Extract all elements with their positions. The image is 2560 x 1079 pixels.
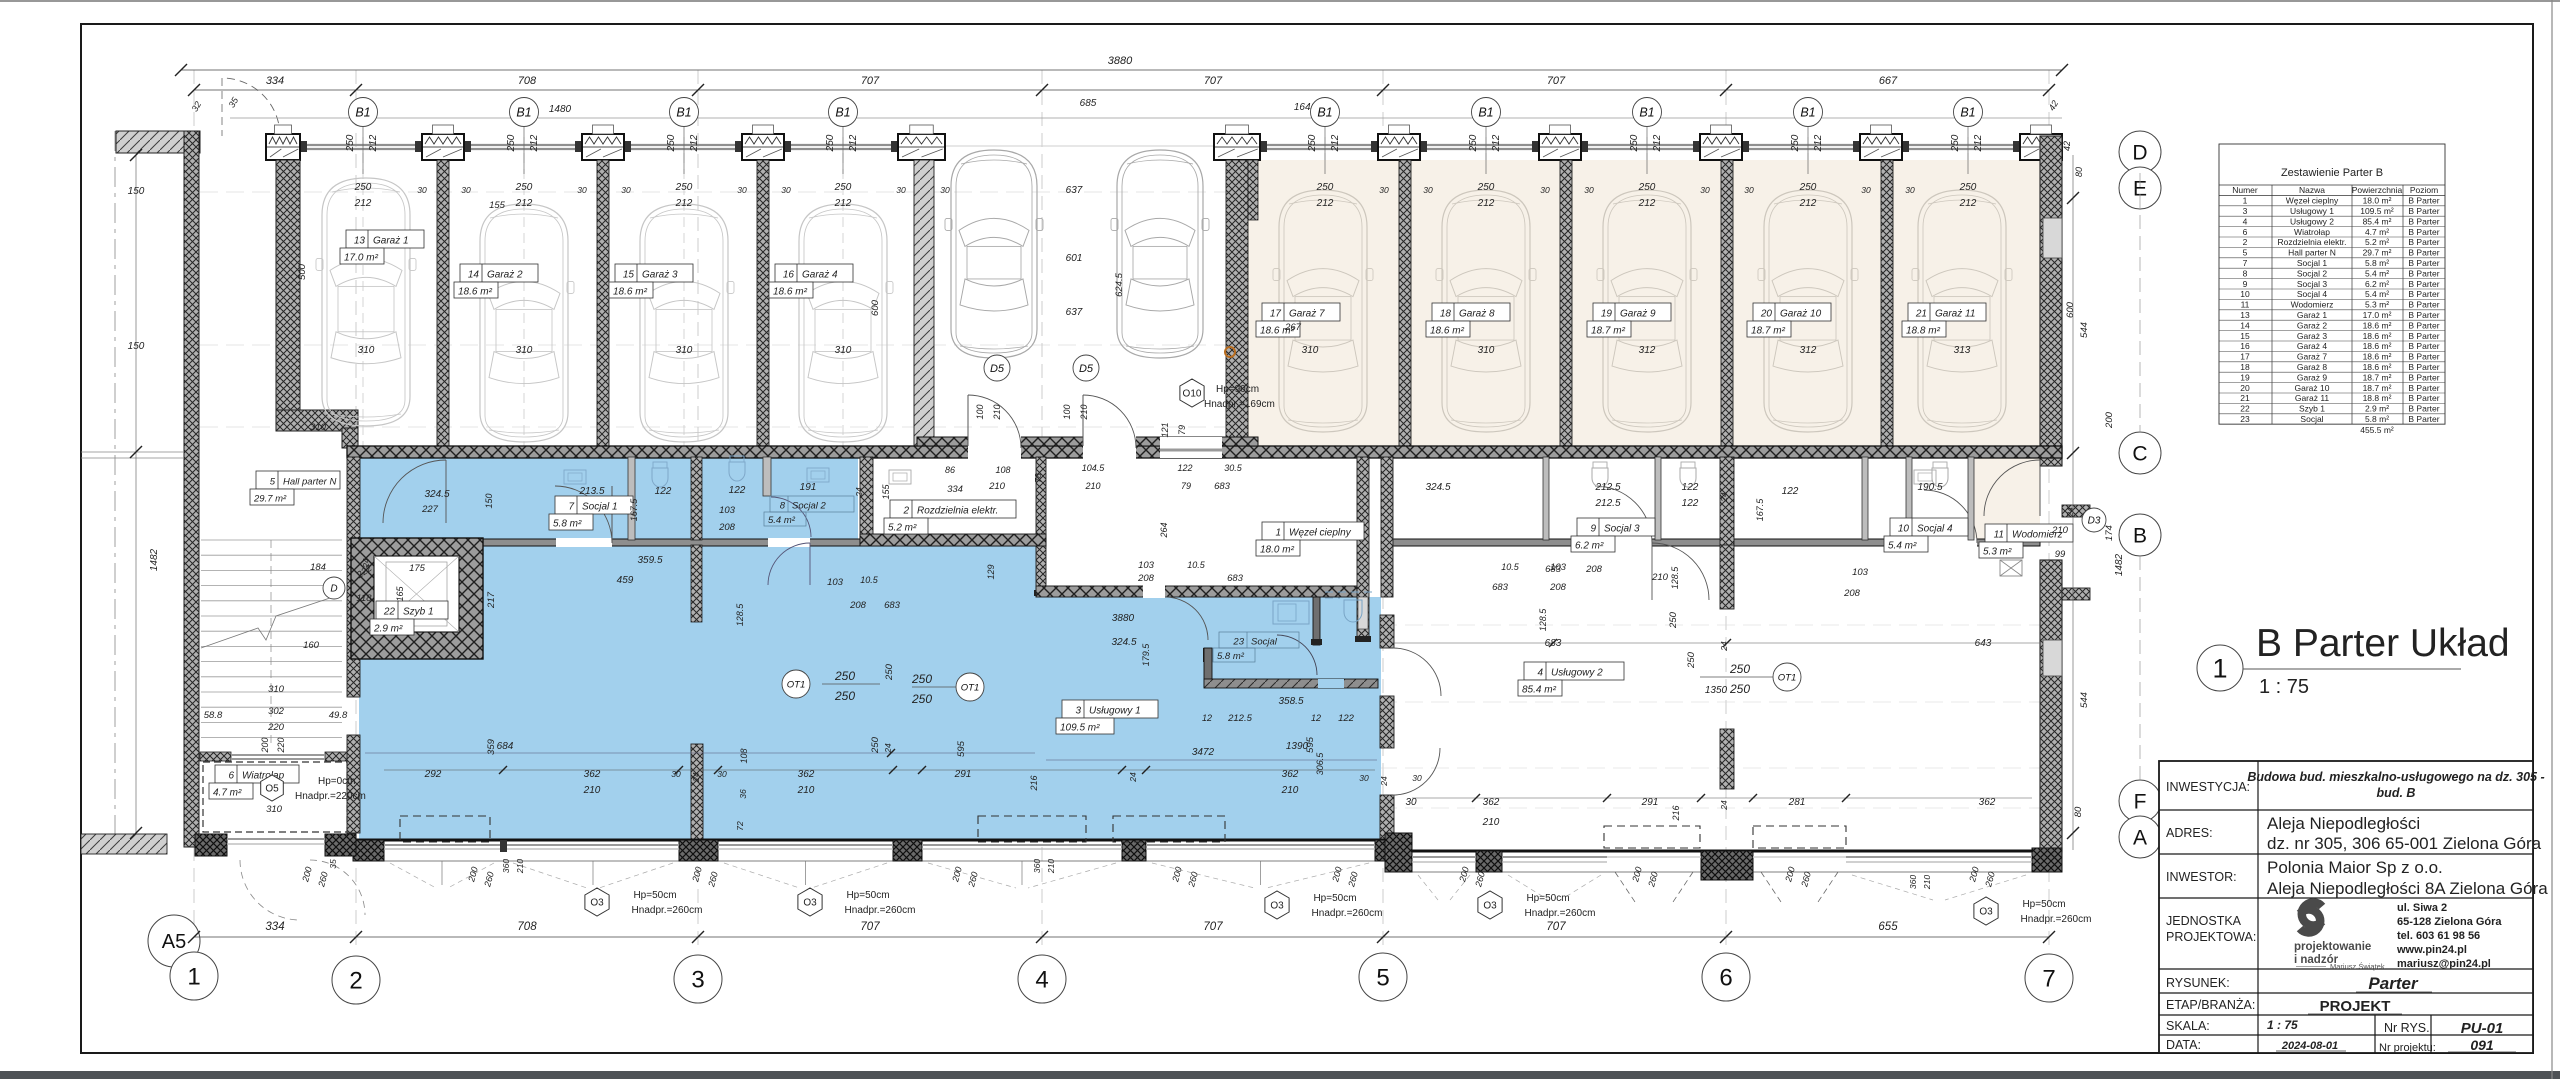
svg-text:2: 2 — [2243, 237, 2248, 247]
svg-text:667: 667 — [1879, 75, 1898, 87]
svg-text:Usługowy 2: Usługowy 2 — [2290, 216, 2334, 226]
svg-text:Socjal 2: Socjal 2 — [2297, 268, 2328, 278]
svg-text:6: 6 — [2243, 227, 2248, 237]
svg-text:F: F — [2134, 790, 2147, 813]
svg-text:Garaż 10: Garaż 10 — [1780, 309, 1822, 320]
svg-text:212: 212 — [1973, 134, 1984, 152]
svg-text:Nr projektu:: Nr projektu: — [2379, 1042, 2436, 1054]
svg-text:18.6 m²: 18.6 m² — [613, 287, 648, 298]
svg-text:B Parter: B Parter — [2408, 300, 2439, 310]
svg-text:5.8 m²: 5.8 m² — [2365, 258, 2389, 268]
svg-text:21: 21 — [2240, 393, 2250, 403]
svg-text:5.2 m²: 5.2 m² — [2365, 237, 2389, 247]
svg-text:210: 210 — [1046, 859, 1056, 874]
svg-text:B Parter: B Parter — [2408, 383, 2439, 393]
svg-text:212: 212 — [834, 198, 852, 209]
svg-text:684: 684 — [497, 741, 514, 752]
svg-text:15: 15 — [2240, 331, 2250, 341]
svg-text:1350: 1350 — [1705, 685, 1728, 696]
svg-text:3472: 3472 — [1192, 747, 1215, 758]
svg-text:683: 683 — [1545, 564, 1562, 575]
svg-text:5: 5 — [270, 477, 276, 488]
svg-text:108: 108 — [739, 748, 749, 763]
svg-text:30: 30 — [1744, 185, 1754, 195]
svg-text:212: 212 — [675, 198, 693, 209]
svg-text:30: 30 — [781, 185, 791, 195]
svg-text:360: 360 — [1032, 859, 1042, 873]
svg-text:D: D — [330, 584, 337, 595]
svg-text:Garaż 9: Garaż 9 — [2297, 372, 2328, 382]
svg-text:79: 79 — [1177, 425, 1187, 435]
svg-text:Garaż 4: Garaż 4 — [802, 270, 838, 281]
svg-text:18.6 m²: 18.6 m² — [1430, 326, 1465, 337]
svg-text:210: 210 — [1281, 785, 1299, 796]
svg-text:358.5: 358.5 — [1278, 696, 1303, 707]
svg-text:B Parter: B Parter — [2408, 372, 2439, 382]
svg-text:ul. Siwa 2: ul. Siwa 2 — [2397, 902, 2447, 914]
svg-text:18.7 m²: 18.7 m² — [1751, 326, 1786, 337]
svg-text:Socjal 1: Socjal 1 — [2297, 258, 2328, 268]
svg-text:Garaż 1: Garaż 1 — [373, 236, 409, 247]
svg-text:B Parter: B Parter — [2408, 362, 2439, 372]
svg-text:18.6 m²: 18.6 m² — [2363, 341, 2392, 351]
svg-text:PROJEKT: PROJEKT — [2320, 998, 2391, 1015]
svg-text:220: 220 — [267, 722, 285, 733]
svg-text:13: 13 — [354, 236, 366, 247]
svg-text:20: 20 — [1760, 309, 1773, 320]
svg-text:7: 7 — [568, 502, 574, 513]
svg-text:18.7 m²: 18.7 m² — [1591, 326, 1626, 337]
svg-text:Hnadpr.=260cm: Hnadpr.=260cm — [1312, 908, 1383, 919]
svg-text:544: 544 — [2079, 692, 2090, 708]
svg-text:17.0 m²: 17.0 m² — [344, 253, 379, 264]
svg-text:16: 16 — [783, 270, 795, 281]
svg-text:30: 30 — [717, 769, 727, 779]
svg-text:216: 216 — [1671, 805, 1681, 821]
svg-text:212: 212 — [368, 134, 379, 152]
svg-text:250: 250 — [354, 182, 372, 193]
svg-text:122: 122 — [1177, 463, 1192, 473]
svg-text:455.5 m²: 455.5 m² — [2360, 425, 2394, 435]
svg-text:7: 7 — [2042, 965, 2055, 992]
svg-text:B1: B1 — [1639, 105, 1654, 119]
svg-text:210: 210 — [797, 785, 815, 796]
svg-text:359: 359 — [486, 738, 497, 755]
svg-text:Hnadpr.=260cm: Hnadpr.=260cm — [845, 905, 916, 916]
svg-text:250: 250 — [1468, 134, 1479, 152]
svg-text:Garaż 11: Garaż 11 — [2295, 393, 2330, 403]
svg-text:Powierzchnia: Powierzchnia — [2352, 185, 2403, 195]
svg-text:O5: O5 — [265, 784, 279, 795]
svg-text:B: B — [2133, 524, 2147, 547]
svg-text:Hall parter N: Hall parter N — [2288, 248, 2336, 258]
svg-text:212: 212 — [515, 198, 533, 209]
svg-text:30: 30 — [1405, 797, 1417, 808]
svg-text:18.8 m²: 18.8 m² — [2363, 393, 2392, 403]
svg-text:250: 250 — [1477, 182, 1495, 193]
svg-text:B1: B1 — [1317, 105, 1332, 119]
svg-text:5.8 m²: 5.8 m² — [1217, 651, 1245, 662]
svg-text:18.7 m²: 18.7 m² — [2363, 383, 2392, 393]
svg-text:ETAP/BRANŻA:: ETAP/BRANŻA: — [2166, 998, 2255, 1012]
svg-text:10: 10 — [2240, 289, 2250, 299]
svg-text:310: 310 — [310, 422, 327, 433]
svg-text:302: 302 — [268, 706, 285, 717]
svg-text:Zestawienie Parter B: Zestawienie Parter B — [2281, 167, 2383, 179]
svg-text:15: 15 — [623, 270, 635, 281]
svg-text:C: C — [2132, 442, 2147, 465]
svg-text:30: 30 — [417, 185, 427, 195]
svg-text:362: 362 — [1282, 769, 1299, 780]
svg-text:250: 250 — [834, 669, 855, 683]
svg-text:Socjal: Socjal — [2300, 414, 2323, 424]
svg-text:212: 212 — [1316, 198, 1334, 209]
svg-text:220: 220 — [276, 737, 286, 753]
svg-text:174: 174 — [2104, 525, 2115, 541]
svg-text:100: 100 — [975, 404, 985, 419]
svg-text:OT1: OT1 — [1778, 672, 1796, 683]
svg-text:3: 3 — [691, 966, 704, 993]
svg-text:INWESTOR:: INWESTOR: — [2166, 870, 2237, 884]
svg-text:10.5: 10.5 — [1187, 560, 1206, 570]
svg-text:B1: B1 — [676, 105, 691, 119]
svg-text:4: 4 — [1035, 966, 1048, 993]
svg-text:14: 14 — [2240, 320, 2250, 330]
svg-text:Socjal 3: Socjal 3 — [2297, 279, 2328, 289]
svg-text:18: 18 — [1440, 309, 1452, 320]
svg-text:ADRES:: ADRES: — [2166, 826, 2213, 840]
svg-text:O3: O3 — [803, 898, 817, 909]
svg-text:212.5: 212.5 — [1594, 498, 1620, 509]
svg-text:250: 250 — [675, 182, 693, 193]
svg-text:708: 708 — [518, 75, 537, 87]
svg-text:184: 184 — [310, 562, 326, 573]
svg-text:6.2 m²: 6.2 m² — [1575, 541, 1604, 552]
svg-text:30: 30 — [1861, 185, 1871, 195]
svg-text:Szyb 1: Szyb 1 — [2299, 404, 2325, 414]
svg-text:1: 1 — [1275, 528, 1281, 539]
svg-text:2.9 m²: 2.9 m² — [373, 624, 403, 635]
svg-text:624.5: 624.5 — [1114, 272, 1125, 296]
svg-text:212: 212 — [1491, 134, 1502, 152]
svg-text:B Parter Układ: B Parter Układ — [2256, 622, 2510, 665]
svg-text:600: 600 — [2065, 301, 2076, 318]
svg-text:10.5: 10.5 — [860, 575, 879, 585]
svg-text:30: 30 — [577, 185, 587, 195]
svg-text:208: 208 — [1585, 564, 1603, 575]
svg-text:Parter: Parter — [2368, 974, 2419, 993]
svg-text:5.4 m²: 5.4 m² — [2365, 289, 2389, 299]
svg-text:Hp=50cm: Hp=50cm — [2022, 899, 2065, 910]
svg-text:122: 122 — [1682, 482, 1699, 493]
svg-text:22: 22 — [2240, 404, 2250, 414]
svg-text:334: 334 — [266, 75, 284, 87]
svg-text:103: 103 — [719, 505, 736, 516]
svg-text:Szyb 1: Szyb 1 — [403, 607, 434, 618]
svg-text:B Parter: B Parter — [2408, 206, 2439, 216]
svg-text:5.4 m²: 5.4 m² — [1888, 541, 1917, 552]
svg-text:Aleja Niepodległości: Aleja Niepodległości — [2267, 814, 2420, 833]
svg-text:13: 13 — [2240, 310, 2250, 320]
svg-text:100: 100 — [1062, 404, 1072, 419]
svg-text:208: 208 — [1843, 588, 1861, 599]
svg-text:109.5 m²: 109.5 m² — [1060, 723, 1100, 734]
svg-text:A: A — [2133, 826, 2147, 849]
svg-text:Mariusz Świątek: Mariusz Świątek — [2330, 962, 2385, 971]
svg-text:B Parter: B Parter — [2408, 258, 2439, 268]
svg-text:10.5: 10.5 — [1501, 562, 1520, 572]
svg-text:250: 250 — [1668, 611, 1679, 629]
svg-text:24: 24 — [361, 558, 371, 569]
svg-text:5.8 m²: 5.8 m² — [553, 519, 582, 530]
svg-text:250: 250 — [834, 689, 855, 703]
svg-text:707: 707 — [860, 921, 880, 933]
svg-text:9: 9 — [2243, 279, 2248, 289]
svg-text:208: 208 — [1549, 582, 1567, 593]
svg-text:20: 20 — [2240, 383, 2250, 393]
svg-text:Usługowy 1: Usługowy 1 — [1089, 706, 1141, 717]
svg-text:212: 212 — [354, 198, 372, 209]
svg-text:B Parter: B Parter — [2408, 352, 2439, 362]
svg-text:Rozdzielnia elektr.: Rozdzielnia elektr. — [2278, 237, 2347, 247]
svg-text:Węzeł cieplny: Węzeł cieplny — [2286, 196, 2339, 206]
svg-text:150: 150 — [484, 493, 494, 508]
svg-text:Wiatrołap: Wiatrołap — [2294, 227, 2330, 237]
svg-text:312: 312 — [1639, 345, 1656, 356]
svg-text:8: 8 — [780, 501, 786, 512]
svg-text:2024-08-01: 2024-08-01 — [2281, 1040, 2338, 1052]
svg-text:637: 637 — [1066, 307, 1083, 318]
svg-text:122: 122 — [1682, 498, 1699, 509]
svg-text:Socjal 3: Socjal 3 — [1604, 524, 1640, 535]
svg-text:310: 310 — [1302, 345, 1319, 356]
svg-text:250: 250 — [1316, 182, 1334, 193]
svg-text:212.5: 212.5 — [1594, 482, 1620, 493]
svg-text:683: 683 — [1227, 573, 1244, 584]
svg-text:30: 30 — [896, 185, 906, 195]
svg-text:1 : 75: 1 : 75 — [2259, 676, 2309, 698]
svg-text:Garaż 7: Garaż 7 — [2297, 352, 2328, 362]
svg-text:18.6 m²: 18.6 m² — [773, 287, 808, 298]
svg-text:Hp=90cm: Hp=90cm — [1216, 384, 1259, 395]
svg-text:250: 250 — [506, 134, 517, 152]
svg-text:128.5: 128.5 — [735, 603, 745, 627]
svg-text:291: 291 — [1641, 797, 1659, 808]
svg-text:4: 4 — [1537, 668, 1543, 679]
svg-text:362: 362 — [1483, 797, 1500, 808]
svg-text:281: 281 — [1788, 797, 1806, 808]
svg-text:210: 210 — [1084, 481, 1100, 491]
svg-text:99: 99 — [2055, 549, 2066, 560]
svg-text:362: 362 — [798, 769, 815, 780]
svg-text:24: 24 — [1719, 800, 1729, 811]
svg-text:4.7 m²: 4.7 m² — [2365, 227, 2389, 237]
svg-text:210: 210 — [1651, 572, 1669, 583]
svg-text:250: 250 — [911, 672, 932, 686]
svg-text:103: 103 — [827, 577, 844, 588]
svg-text:23: 23 — [1232, 637, 1244, 648]
svg-text:210: 210 — [2051, 525, 2069, 536]
svg-text:250: 250 — [825, 134, 836, 152]
svg-text:72: 72 — [735, 821, 745, 831]
svg-text:Nr RYS.: Nr RYS. — [2384, 1021, 2430, 1035]
svg-text:250: 250 — [884, 663, 895, 681]
svg-text:683: 683 — [1214, 481, 1231, 492]
svg-text:Nazwa: Nazwa — [2299, 185, 2325, 195]
svg-text:14: 14 — [468, 270, 480, 281]
svg-text:6: 6 — [1719, 964, 1732, 991]
svg-text:30: 30 — [737, 185, 747, 195]
svg-text:B Parter: B Parter — [2408, 196, 2439, 206]
svg-text:707: 707 — [861, 75, 880, 87]
svg-text:B Parter: B Parter — [2408, 279, 2439, 289]
svg-text:212: 212 — [529, 134, 540, 152]
svg-text:250: 250 — [911, 692, 932, 706]
svg-text:155: 155 — [881, 484, 891, 500]
svg-text:2: 2 — [902, 506, 909, 517]
svg-text:12: 12 — [1202, 713, 1212, 723]
svg-text:121: 121 — [1160, 422, 1170, 437]
svg-text:B Parter: B Parter — [2408, 216, 2439, 226]
svg-text:5: 5 — [2243, 248, 2248, 258]
svg-text:6.2 m²: 6.2 m² — [2365, 279, 2389, 289]
svg-text:313: 313 — [1954, 345, 1971, 356]
svg-text:Garaż 11: Garaż 11 — [1935, 309, 1975, 320]
svg-text:595: 595 — [956, 740, 967, 757]
svg-text:B1: B1 — [516, 105, 531, 119]
svg-text:459: 459 — [617, 575, 634, 586]
svg-text:2: 2 — [349, 967, 362, 994]
svg-text:24: 24 — [2065, 507, 2075, 518]
svg-text:175: 175 — [409, 563, 426, 574]
svg-text:30: 30 — [940, 185, 950, 195]
svg-text:595: 595 — [1305, 736, 1316, 753]
svg-text:Budowa bud. mieszkalno-usługow: Budowa bud. mieszkalno-usługowego na dz.… — [2247, 770, 2544, 784]
svg-text:250: 250 — [834, 182, 852, 193]
svg-text:200: 200 — [260, 737, 270, 753]
svg-text:291: 291 — [954, 769, 972, 780]
svg-text:Socjal 4: Socjal 4 — [1917, 524, 1953, 535]
svg-text:Hp=50cm: Hp=50cm — [1313, 893, 1356, 904]
svg-text:30: 30 — [621, 185, 631, 195]
svg-text:250: 250 — [1799, 182, 1817, 193]
svg-text:18.6 m²: 18.6 m² — [458, 287, 493, 298]
svg-text:4.7 m²: 4.7 m² — [213, 788, 242, 799]
svg-text:191: 191 — [800, 482, 817, 493]
svg-text:49.8: 49.8 — [329, 710, 348, 721]
svg-text:18.6 m²: 18.6 m² — [2363, 331, 2392, 341]
svg-text:250: 250 — [1638, 182, 1656, 193]
svg-text:707: 707 — [1546, 921, 1566, 933]
svg-text:5.8 m²: 5.8 m² — [2365, 414, 2389, 424]
svg-text:Garaż 3: Garaż 3 — [642, 270, 678, 281]
svg-text:24: 24 — [1719, 492, 1729, 503]
svg-text:B Parter: B Parter — [2408, 227, 2439, 237]
svg-text:167.5: 167.5 — [1755, 498, 1765, 522]
svg-text:707: 707 — [1203, 921, 1223, 933]
svg-text:310: 310 — [835, 345, 852, 356]
svg-text:Hnadpr.=260cm: Hnadpr.=260cm — [1525, 908, 1596, 919]
svg-text:306.5: 306.5 — [1315, 752, 1325, 776]
svg-text:B Parter: B Parter — [2408, 289, 2439, 299]
svg-text:65-128 Zielona Góra: 65-128 Zielona Góra — [2397, 916, 2502, 928]
svg-text:30: 30 — [1905, 185, 1915, 195]
svg-text:155: 155 — [489, 200, 506, 211]
svg-text:B1: B1 — [1478, 105, 1493, 119]
svg-text:30: 30 — [1359, 773, 1369, 783]
svg-text:250: 250 — [870, 736, 881, 754]
svg-text:683: 683 — [884, 600, 901, 611]
svg-text:1480: 1480 — [549, 104, 572, 115]
svg-text:179.5: 179.5 — [1141, 643, 1151, 667]
svg-text:O3: O3 — [1270, 901, 1284, 912]
svg-text:B Parter: B Parter — [2408, 414, 2439, 424]
svg-text:RYSUNEK:: RYSUNEK: — [2166, 976, 2230, 990]
svg-text:58.8: 58.8 — [204, 710, 223, 721]
svg-text:250: 250 — [1307, 134, 1318, 152]
svg-text:OT1: OT1 — [787, 679, 805, 690]
svg-text:5.4 m²: 5.4 m² — [768, 515, 796, 526]
svg-text:208: 208 — [849, 600, 867, 611]
svg-text:334: 334 — [265, 921, 284, 933]
svg-text:359.5: 359.5 — [637, 555, 662, 566]
svg-text:24: 24 — [1379, 776, 1389, 787]
svg-text:167.5: 167.5 — [629, 498, 639, 522]
svg-text:3: 3 — [1075, 706, 1081, 717]
svg-text:9: 9 — [1590, 524, 1596, 535]
svg-text:210: 210 — [583, 785, 601, 796]
svg-text:B Parter: B Parter — [2408, 331, 2439, 341]
svg-text:B Parter: B Parter — [2408, 310, 2439, 320]
svg-text:250: 250 — [666, 134, 677, 152]
svg-text:29.7 m²: 29.7 m² — [253, 494, 287, 505]
svg-text:210: 210 — [988, 481, 1006, 492]
svg-text:B Parter: B Parter — [2408, 341, 2439, 351]
svg-text:85.4 m²: 85.4 m² — [1522, 685, 1557, 696]
svg-text:O10: O10 — [1183, 389, 1202, 400]
svg-text:24: 24 — [883, 743, 893, 754]
svg-text:655: 655 — [1878, 921, 1898, 933]
svg-text:8: 8 — [2243, 268, 2248, 278]
svg-text:bud. B: bud. B — [2377, 786, 2416, 800]
svg-text:544: 544 — [2079, 322, 2090, 338]
svg-text:122: 122 — [1338, 713, 1355, 724]
svg-text:108: 108 — [995, 465, 1010, 475]
svg-text:334: 334 — [947, 484, 963, 495]
svg-text:212: 212 — [1813, 134, 1824, 152]
svg-text:3880: 3880 — [1112, 613, 1135, 624]
svg-text:D: D — [2132, 141, 2147, 164]
svg-text:103: 103 — [1852, 567, 1869, 578]
svg-text:30.5: 30.5 — [1224, 463, 1243, 473]
svg-text:216: 216 — [1029, 775, 1039, 791]
svg-text:637: 637 — [1066, 185, 1083, 196]
svg-text:208: 208 — [1137, 573, 1155, 584]
svg-text:B1: B1 — [835, 105, 850, 119]
svg-text:Aleja Niepodległości 8A Zielo: Aleja Niepodległości 8A Zielona Góra — [2267, 879, 2548, 898]
svg-text:24: 24 — [1128, 772, 1138, 783]
svg-text:5.3 m²: 5.3 m² — [1983, 547, 2012, 558]
svg-text:160: 160 — [303, 640, 320, 651]
svg-text:600: 600 — [870, 299, 881, 316]
svg-text:212: 212 — [1959, 198, 1977, 209]
svg-text:79: 79 — [1181, 481, 1191, 491]
svg-text:360: 360 — [501, 859, 511, 873]
svg-text:250: 250 — [1629, 134, 1640, 152]
svg-text:Wodomierz: Wodomierz — [2291, 300, 2334, 310]
svg-text:18.6 m²: 18.6 m² — [2363, 362, 2392, 372]
svg-text:Usługowy 1: Usługowy 1 — [2290, 206, 2334, 216]
